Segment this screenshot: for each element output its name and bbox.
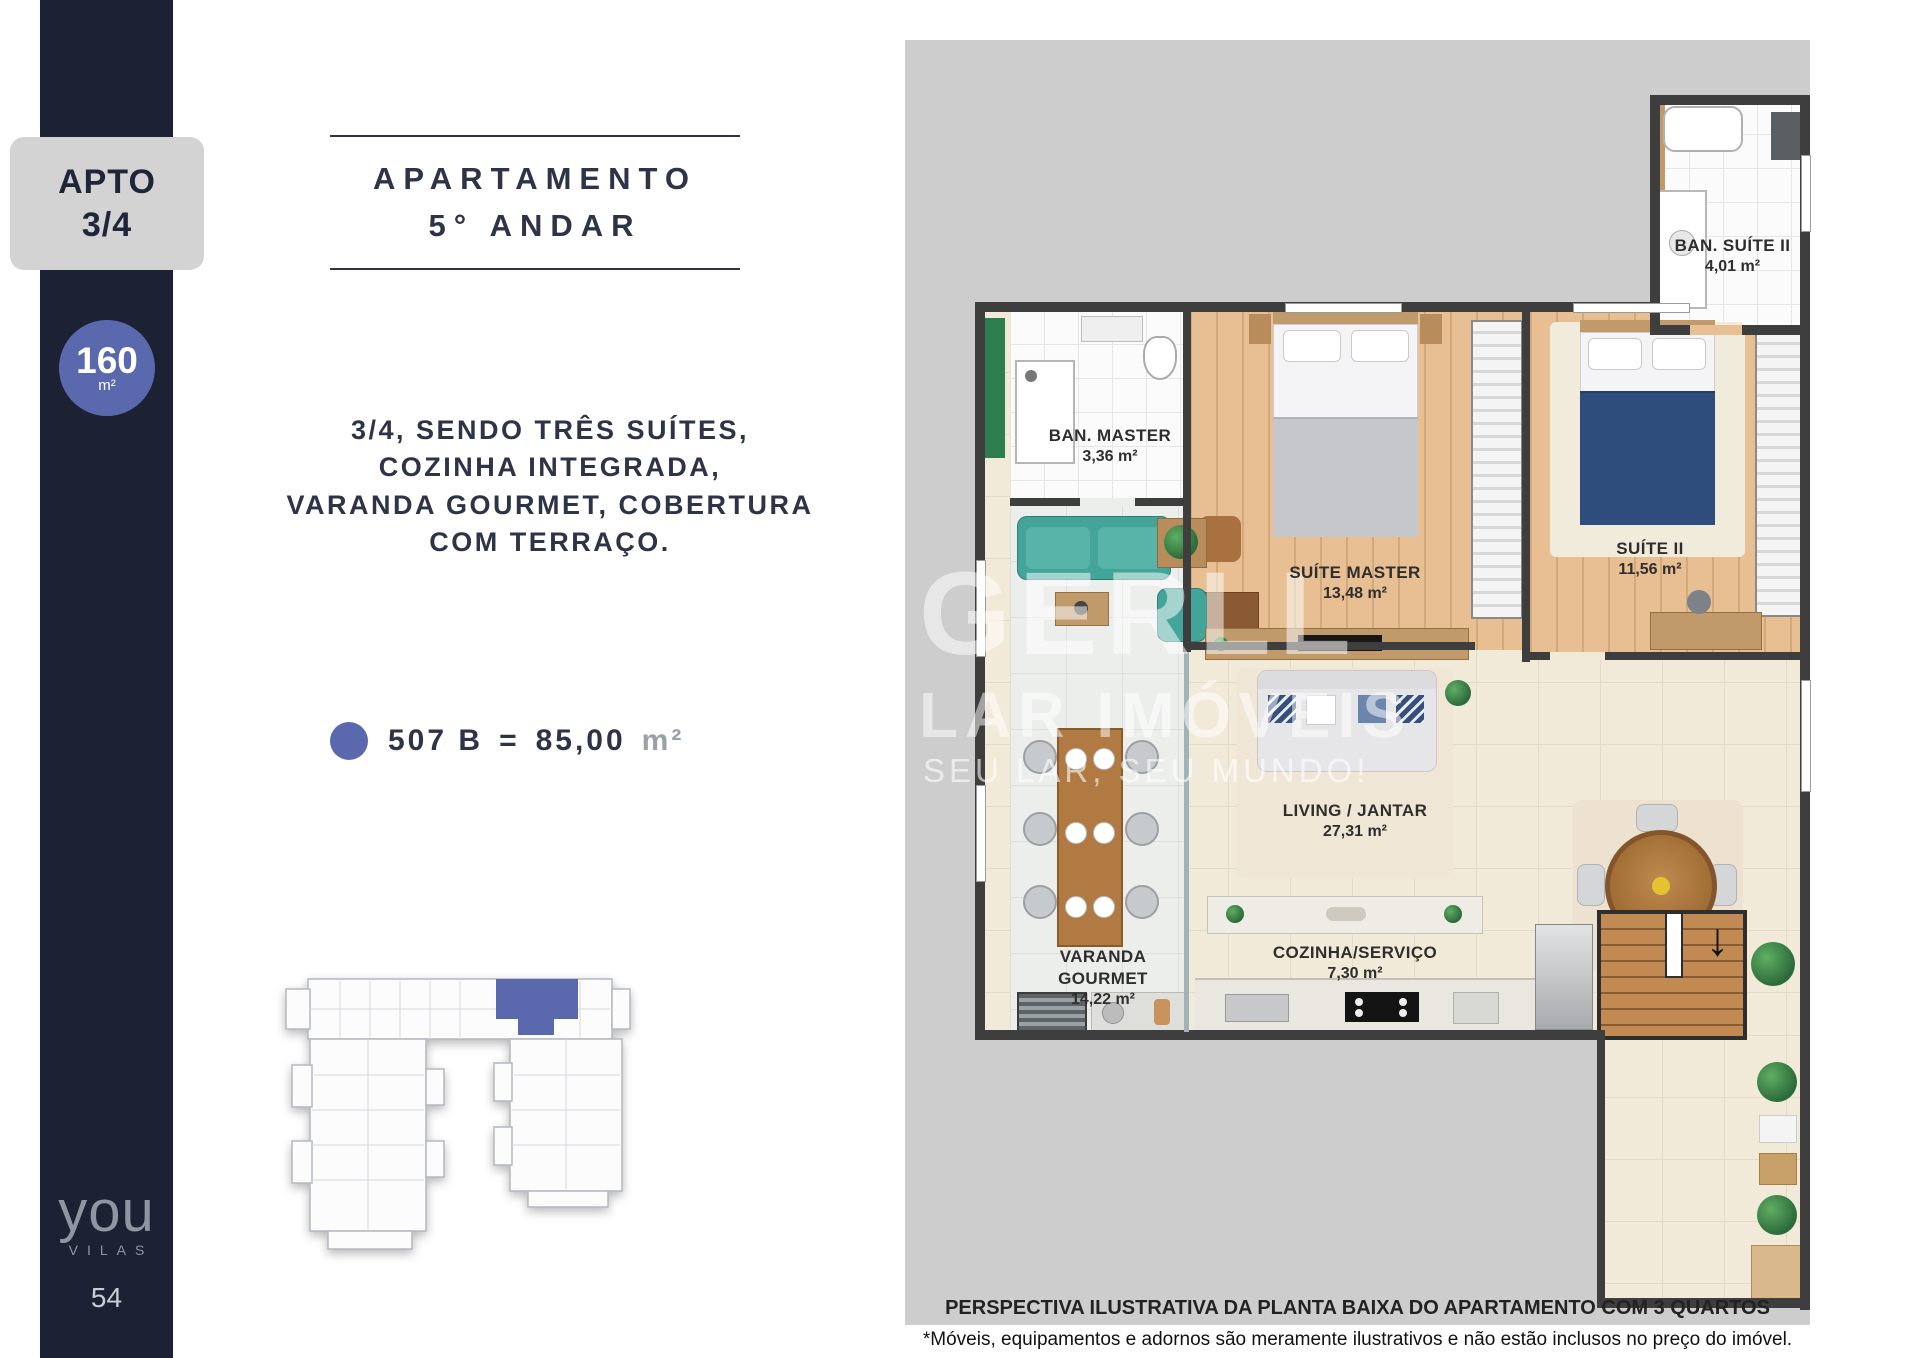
bed-2-pillow-right [1652, 338, 1706, 370]
island-bowl [1326, 907, 1366, 921]
bed-suite-2 [1580, 320, 1715, 525]
label-suite-2: SUÍTE II 11,56 m² [1560, 538, 1740, 581]
kitchen-sink [1225, 994, 1289, 1022]
room-name: VARANDA GOURMET [1015, 946, 1191, 990]
bed-master-headboard [1273, 312, 1418, 324]
wall-bath2-top [1650, 95, 1810, 105]
nightstand-left [1249, 314, 1271, 344]
page-title: APARTAMENTO 5° ANDAR [245, 156, 825, 249]
toilet-master [1143, 336, 1177, 380]
room-name: SUÍTE II [1560, 538, 1740, 560]
apartment-description: 3/4, SENDO TRÊS SUÍTES, COZINHA INTEGRAD… [240, 412, 860, 561]
brochure-page: APTO 3/4 160 m² you VILAS 54 APARTAMENTO… [0, 0, 1920, 1358]
sofa-teal-cushion-1 [1026, 527, 1090, 569]
room-name: COZINHA/SERVIÇO [1255, 942, 1455, 964]
nightstand-right [1420, 314, 1442, 344]
living-plant [1445, 680, 1471, 706]
plant-varanda-icon [1164, 525, 1198, 559]
room-name: LIVING / JANTAR [1265, 800, 1445, 822]
wall-terrace-left [1597, 1038, 1605, 1302]
fridge [1535, 924, 1593, 1030]
wall-left-interior [1183, 302, 1191, 652]
legend-unit: 507 B [388, 724, 483, 758]
cooktop [1345, 992, 1419, 1022]
plate [1065, 896, 1087, 918]
bathtub [1663, 106, 1743, 152]
burner [1355, 1009, 1363, 1017]
building-outline-svg [270, 965, 635, 1265]
total-area-unit: m² [98, 377, 116, 394]
desk-suite-2 [1650, 612, 1762, 650]
dining-plant [1751, 942, 1795, 986]
sofa-pillow [1306, 695, 1336, 725]
description-line4: COM TERRAÇO. [240, 524, 860, 561]
vanity-master [1081, 316, 1143, 342]
legend-equals: = [499, 724, 520, 758]
legend-dot-icon [330, 722, 368, 760]
dining-chair [1577, 864, 1605, 906]
desk-chair-suite-2 [1687, 590, 1711, 614]
apto-badge-line1: APTO [58, 161, 156, 204]
wall-between-suites [1522, 302, 1530, 662]
title-rule-top [330, 135, 740, 137]
unit-legend: 507 B = 85,00 m² [330, 722, 684, 760]
label-ban-master: BAN. MASTER 3,36 m² [1025, 425, 1195, 468]
burner [1355, 998, 1363, 1006]
terrace-plant [1757, 1062, 1797, 1102]
door-gap-ban-master [1080, 498, 1135, 506]
island-plant [1226, 905, 1244, 923]
burner [1399, 1009, 1407, 1017]
shower-head-unit [1771, 112, 1801, 160]
gourmet-chair [1023, 885, 1057, 919]
window-dining [1801, 680, 1811, 792]
title-rule-bottom [330, 268, 740, 270]
armchair-teal [1157, 588, 1207, 642]
door-gap-suite-2 [1550, 652, 1605, 660]
bed-master-pillow-left [1283, 330, 1341, 362]
sofa-pillow [1358, 695, 1386, 723]
terrace-basket [1759, 1153, 1797, 1185]
legend-area: 85,00 [536, 724, 626, 758]
room-name: BAN. MASTER [1025, 425, 1195, 447]
sofa-teal-cushion-2 [1098, 527, 1162, 569]
floorplan-panel: ↓ BAN. SUÍTE II [905, 40, 1810, 1325]
stairs-down-arrow: ↓ [1706, 912, 1729, 966]
room-name: BAN. SUÍTE II [1660, 235, 1805, 257]
plant-box-varanda [1157, 518, 1207, 568]
page-number: 54 [40, 1282, 173, 1314]
plan-caption-title: PERSPECTIVA ILUSTRATIVA DA PLANTA BAIXA … [905, 1297, 1810, 1320]
wall-bottom-main [975, 1030, 1605, 1040]
plate [1065, 748, 1087, 770]
apto-badge-line2: 3/4 [82, 204, 132, 247]
you-vilas-logo: you VILAS 54 [40, 1186, 173, 1314]
logo-sub-text: VILAS [40, 1242, 173, 1258]
plate [1065, 822, 1087, 844]
label-suite-master: SUÍTE MASTER 13,48 m² [1265, 562, 1445, 605]
window-suite-2 [1573, 303, 1690, 313]
dining-chair [1636, 804, 1678, 832]
bed-suite-master [1273, 312, 1418, 537]
burner [1399, 998, 1407, 1006]
kitchen-counter [1195, 978, 1540, 1034]
plan-caption-note: *Móveis, equipamentos e adornos são mera… [905, 1329, 1810, 1351]
table-flowers [1652, 877, 1670, 895]
gourmet-chair [1125, 740, 1159, 774]
sofa-backrest [1258, 671, 1436, 689]
bed-2-pillow-left [1588, 338, 1642, 370]
room-area: 3,36 m² [1025, 447, 1195, 468]
bed-master-pillow-right [1351, 330, 1409, 362]
kitchen-appliance [1453, 992, 1499, 1024]
shower-drain [1025, 370, 1037, 382]
coffee-table-vase [1074, 601, 1088, 615]
terrace-towels [1759, 1115, 1797, 1143]
legend-area-unit: m² [642, 724, 685, 758]
label-cozinha-servico: COZINHA/SERVIÇO 7,30 m² [1255, 942, 1455, 985]
room-area: 4,01 m² [1660, 257, 1805, 278]
bed-master-blanket [1273, 417, 1418, 537]
gourmet-chair [1023, 812, 1057, 846]
legend-text: 507 B = 85,00 m² [388, 724, 684, 758]
wall-bath2-left [1650, 95, 1660, 335]
wall-hall-1 [1190, 642, 1475, 650]
terrace-plant [1757, 1195, 1797, 1235]
bed-2-blanket [1580, 391, 1715, 525]
sofa-pillow [1268, 695, 1296, 723]
description-line3: VARANDA GOURMET, COBERTURA [240, 487, 860, 524]
window-varanda-1 [976, 560, 986, 657]
label-ban-suite-2: BAN. SUÍTE II 4,01 m² [1660, 235, 1805, 278]
plate [1093, 822, 1115, 844]
sofa-living [1257, 670, 1437, 772]
total-area-value: 160 [76, 342, 138, 379]
logo-main-text: you [40, 1186, 173, 1238]
gourmet-chair [1023, 740, 1057, 774]
room-area: 14,22 m² [1015, 990, 1191, 1011]
sofa-pillow [1396, 695, 1424, 723]
stairs: ↓ [1597, 910, 1747, 1040]
sofa-teal [1017, 516, 1171, 580]
door-gap-bath2 [1690, 325, 1742, 335]
room-area: 13,48 m² [1265, 584, 1445, 605]
window-bath2 [1801, 155, 1811, 232]
label-varanda-gourmet: VARANDA GOURMET 14,22 m² [1015, 946, 1191, 1011]
island-plant [1444, 905, 1462, 923]
coffee-table [1055, 592, 1109, 626]
total-area-badge: 160 m² [59, 320, 155, 416]
apto-badge: APTO 3/4 [10, 137, 204, 270]
plate [1093, 748, 1115, 770]
description-line2: COZINHA INTEGRADA, [240, 449, 860, 486]
description-line1: 3/4, SENDO TRÊS SUÍTES, [240, 412, 860, 449]
room-area: 11,56 m² [1560, 560, 1740, 581]
room-name: SUÍTE MASTER [1265, 562, 1445, 584]
plate [1093, 896, 1115, 918]
gourmet-chair [1125, 885, 1159, 919]
island-counter [1207, 896, 1483, 934]
gourmet-chair [1125, 812, 1159, 846]
wall-left [975, 302, 985, 1040]
gourmet-table [1057, 728, 1123, 947]
room-area: 7,30 m² [1255, 964, 1455, 985]
window-suite-master [1285, 303, 1402, 313]
building-key-plan [270, 965, 635, 1270]
window-varanda-2 [976, 785, 986, 882]
stairs-slot [1665, 914, 1683, 978]
page-title-line1: APARTAMENTO [245, 156, 825, 203]
label-living-jantar: LIVING / JANTAR 27,31 m² [1265, 800, 1445, 843]
room-area: 27,31 m² [1265, 822, 1445, 843]
page-title-line2: 5° ANDAR [245, 203, 825, 250]
wardrobe-suite-master [1471, 320, 1523, 619]
terrace-door-panel [1751, 1245, 1805, 1303]
